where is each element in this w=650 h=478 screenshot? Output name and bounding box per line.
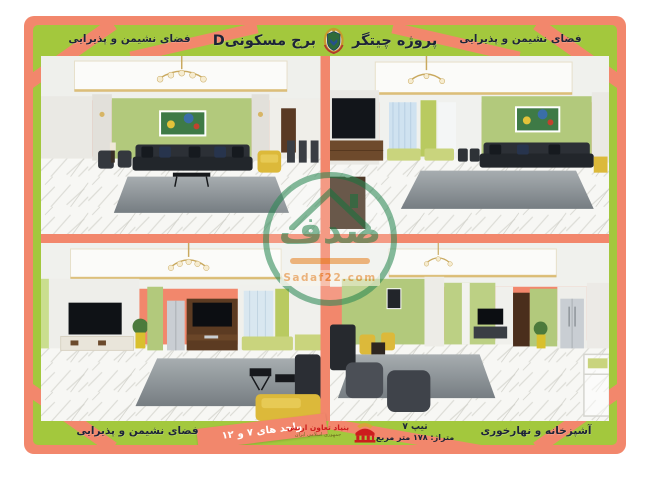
- title-group: پروژه چیتگر برج مسکونیD: [213, 27, 438, 54]
- bottom-right-panel-label: آشپزخانه و نهارخوری: [461, 425, 611, 437]
- bottom-left-panel-label: فضای نشیمن و پذیرایی: [55, 425, 220, 437]
- flyer-page: فضای نشیمن و پذیرایی پروژه چیتگر برج مسک…: [0, 0, 650, 478]
- watermark-brand-text: صدف: [257, 210, 403, 250]
- tower-title: برج مسکونیD: [213, 33, 316, 49]
- type-area-block: تیپ ۷ متراژ: ۱۷۸ متر مربع: [373, 422, 457, 443]
- area-label: متراژ: ۱۷۸ متر مربع: [373, 433, 457, 443]
- header: فضای نشیمن و پذیرایی پروژه چیتگر برج مسک…: [33, 25, 617, 56]
- army-emblem-icon: [323, 27, 345, 54]
- foundation-text: بنیاد تعاون ارتش جمهوری اسلامی ایران: [285, 423, 351, 438]
- watermark-underline: [290, 258, 370, 264]
- top-left-panel-label: فضای نشیمن و پذیرایی: [47, 33, 212, 45]
- foundation-name: بنیاد تعاون ارتش: [285, 423, 351, 432]
- top-right-panel-label: فضای نشیمن و پذیرایی: [438, 33, 603, 45]
- project-title: پروژه چیتگر: [352, 33, 437, 49]
- watermark-site-text: Sadaf22.com: [280, 270, 380, 286]
- sadaf-watermark: صدف Sadaf22.com: [257, 166, 403, 312]
- type-label: تیپ ۷: [373, 422, 457, 433]
- foundation-subtitle: جمهوری اسلامی ایران: [285, 432, 351, 438]
